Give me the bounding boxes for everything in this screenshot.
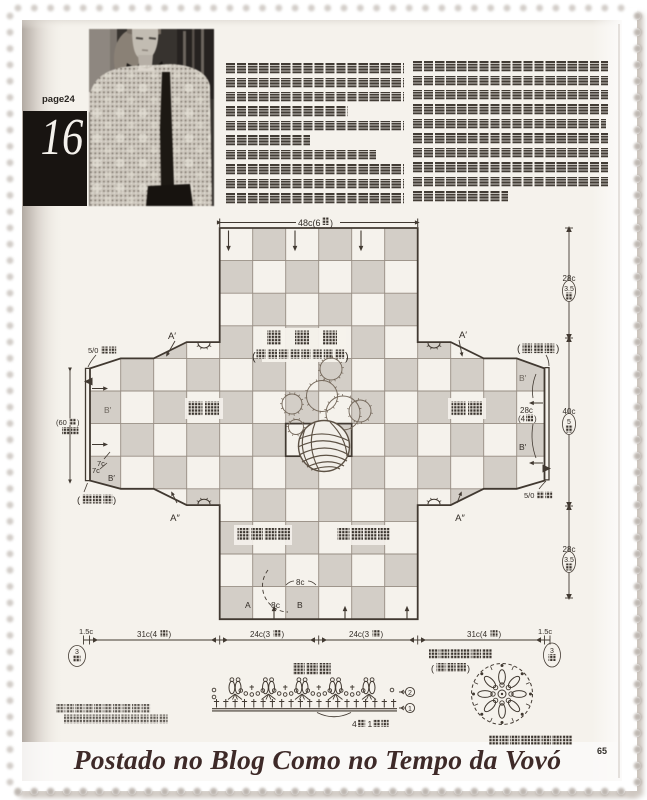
svg-text:): ): [77, 418, 80, 427]
svg-text:): ): [169, 630, 172, 639]
svg-text:): ): [556, 344, 559, 355]
svg-text:3: 3: [550, 648, 554, 655]
svg-text:): ): [345, 351, 349, 363]
svg-text:8c: 8c: [296, 578, 304, 587]
svg-text:31c(4: 31c(4: [137, 630, 158, 639]
svg-text:1: 1: [368, 719, 373, 729]
svg-text:24c(3: 24c(3: [349, 630, 370, 639]
svg-text:5: 5: [567, 419, 571, 426]
svg-text:(60: (60: [56, 418, 67, 427]
svg-text:7c: 7c: [92, 466, 100, 475]
svg-text:(: (: [252, 351, 256, 363]
svg-text:5/0: 5/0: [524, 491, 534, 500]
svg-text:31c(4: 31c(4: [467, 630, 488, 639]
svg-text:A′: A′: [168, 331, 176, 342]
svg-text:B′: B′: [108, 474, 115, 483]
svg-text:A″: A″: [170, 513, 180, 524]
svg-text:B: B: [297, 600, 303, 610]
svg-text:B′: B′: [104, 405, 112, 415]
svg-text:3.5: 3.5: [564, 286, 574, 293]
svg-text:8c: 8c: [271, 600, 281, 610]
svg-text:(: (: [431, 664, 434, 674]
svg-text:1.5c: 1.5c: [538, 627, 552, 636]
svg-text:): ): [467, 664, 470, 674]
svg-text:3.5: 3.5: [564, 557, 574, 564]
svg-text:24c(3: 24c(3: [250, 630, 271, 639]
svg-text:4: 4: [352, 719, 357, 729]
svg-text:5/0: 5/0: [88, 346, 98, 355]
svg-text:3: 3: [75, 649, 79, 656]
svg-text:A″: A″: [455, 513, 465, 524]
svg-text:48c(6: 48c(6: [298, 218, 321, 228]
svg-text:(4: (4: [518, 415, 526, 424]
svg-text:): ): [534, 415, 537, 424]
svg-text:): ): [113, 495, 116, 506]
svg-text:): ): [330, 218, 333, 228]
svg-text:B′: B′: [519, 373, 527, 383]
svg-text:1: 1: [408, 706, 412, 713]
svg-text:B′: B′: [519, 442, 527, 452]
svg-text:(: (: [517, 344, 521, 355]
svg-text:(: (: [77, 495, 81, 506]
svg-text:A′: A′: [459, 330, 467, 341]
svg-text:): ): [381, 630, 384, 639]
svg-text:1.5c: 1.5c: [79, 627, 93, 636]
svg-text:): ): [282, 630, 285, 639]
svg-text:A: A: [245, 600, 251, 610]
svg-text:): ): [499, 630, 502, 639]
svg-text:2: 2: [408, 690, 412, 697]
